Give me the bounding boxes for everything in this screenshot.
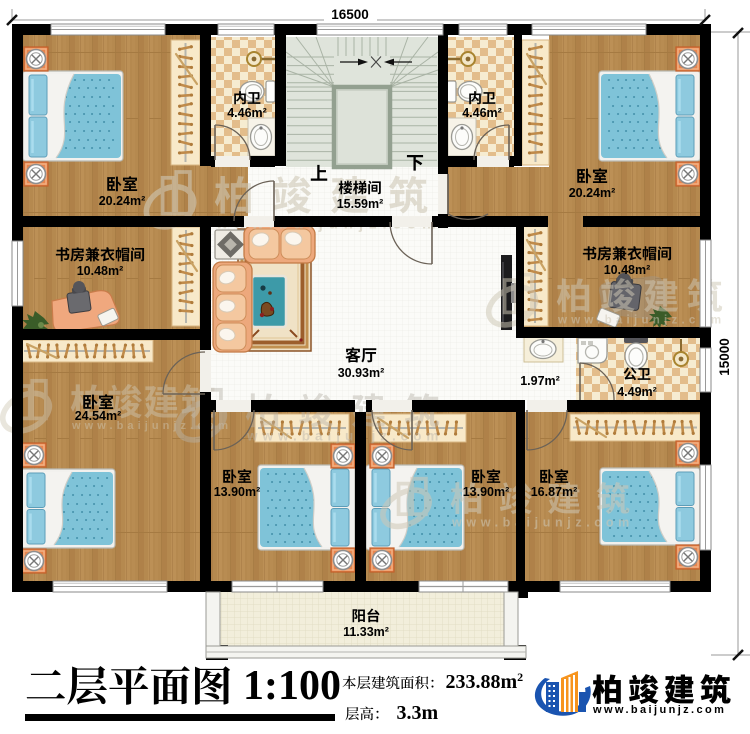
svg-text:20.24m²: 20.24m²	[99, 194, 146, 208]
svg-text:13.90m²: 13.90m²	[463, 485, 510, 499]
svg-text:4.49m²: 4.49m²	[617, 385, 657, 399]
svg-text:1:100: 1:100	[243, 663, 341, 709]
svg-text:3.3m: 3.3m	[397, 702, 439, 724]
svg-text:30.93m²: 30.93m²	[338, 366, 385, 380]
svg-text:20.24m²: 20.24m²	[569, 186, 616, 200]
svg-text:www.baijunjz.com: www.baijunjz.com	[451, 516, 634, 530]
svg-text:www.baijunjz.com: www.baijunjz.com	[592, 704, 726, 716]
svg-text:16.87m²: 16.87m²	[531, 485, 578, 499]
svg-text:4.46m²: 4.46m²	[227, 106, 267, 120]
svg-text:4.46m²: 4.46m²	[462, 106, 502, 120]
svg-text:10.48m²: 10.48m²	[604, 263, 651, 277]
svg-text:24.54m²: 24.54m²	[75, 409, 122, 423]
svg-text:15000: 15000	[717, 338, 732, 376]
svg-text:1.97m²: 1.97m²	[520, 374, 560, 388]
svg-text:www.baijunjz.com: www.baijunjz.com	[246, 429, 443, 444]
svg-text:13.90m²: 13.90m²	[214, 485, 261, 499]
svg-text:233.88m2: 233.88m2	[446, 670, 524, 693]
svg-text:10.48m²: 10.48m²	[77, 264, 124, 278]
svg-text:15.59m²: 15.59m²	[337, 197, 384, 211]
svg-text:11.33m²: 11.33m²	[343, 625, 389, 639]
svg-text:16500: 16500	[331, 7, 369, 22]
